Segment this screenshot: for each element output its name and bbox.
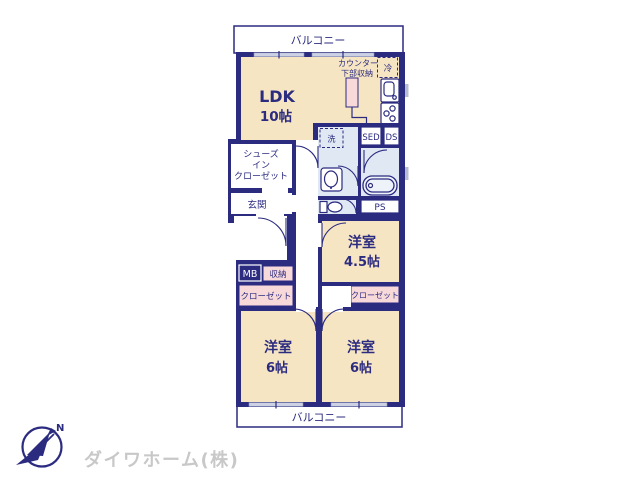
front-door-opening xyxy=(256,212,284,217)
balcony-top-label: バルコニー xyxy=(291,34,346,47)
storage-label: 収納 xyxy=(269,269,286,280)
sed-label: SED xyxy=(362,133,380,143)
toilet-bowl-icon xyxy=(328,202,342,212)
wall-vent-lower xyxy=(405,167,409,180)
ldk-size-label: 10帖 xyxy=(260,108,293,125)
room-bedroom-45 xyxy=(322,221,399,282)
washer-label: 洗 xyxy=(328,134,336,144)
balcony-bottom-label: バルコニー xyxy=(292,411,347,424)
compass-north-label: N xyxy=(56,423,64,434)
floor-plan-svg: バルコニー バルコニー LDK 10帖 カウンター 下部収納 冷 洗 SED D… xyxy=(0,0,640,480)
company-name: ダイワホーム(株) xyxy=(84,449,239,471)
kitchen-counter xyxy=(346,78,358,107)
stove-burner-2 xyxy=(384,111,389,116)
ds-label: DS xyxy=(386,133,398,143)
floor-plan-page: バルコニー バルコニー LDK 10帖 カウンター 下部収納 冷 洗 SED D… xyxy=(0,0,640,480)
bedroom-45-size: 4.5帖 xyxy=(344,254,380,270)
counter-label-line2: 下部収納 xyxy=(341,68,373,78)
closet-left-label: クローゼット xyxy=(240,291,291,302)
ldk-door-opening xyxy=(296,140,318,145)
wall-vent-upper xyxy=(405,84,409,97)
stove-burner-1 xyxy=(390,106,395,111)
mb-label: MB xyxy=(243,269,258,280)
stove-burner-3 xyxy=(390,116,395,121)
ps-label: PS xyxy=(374,203,385,213)
fridge-label: 冷 xyxy=(384,63,393,74)
washbasin-bowl xyxy=(325,171,338,187)
washbasin-drain xyxy=(330,187,332,189)
toilet-tank xyxy=(320,202,327,213)
entrance-label: 玄関 xyxy=(247,199,266,211)
corridor xyxy=(296,144,318,307)
entrance-porch xyxy=(234,216,287,260)
shoes-closet-line3: クローゼット xyxy=(234,170,288,182)
bathtub-faucet xyxy=(369,184,373,188)
counter-label-line1: カウンター xyxy=(338,59,378,68)
corridor-alcove xyxy=(322,286,351,307)
kitchen-sink-basin xyxy=(384,82,394,96)
bedroom-6-right-size: 6帖 xyxy=(350,360,372,376)
bedroom-45-door-opening xyxy=(317,223,322,247)
bedroom-6-right-label: 洋室 xyxy=(347,339,375,356)
ldk-label: LDK xyxy=(259,87,295,106)
compass-bird-wing xyxy=(27,432,50,456)
bedroom-6-left-label: 洋室 xyxy=(264,339,292,356)
closet-right-label: クローゼット xyxy=(351,290,399,300)
compass-logo: N xyxy=(16,423,64,467)
kitchen-faucet-icon xyxy=(393,96,397,100)
room-bedroom-6-left xyxy=(241,311,316,402)
shoes-closet-line1: シューズ xyxy=(243,148,279,160)
room-bedroom-6-right xyxy=(322,311,399,402)
bedroom-45-label: 洋室 xyxy=(348,234,376,251)
bedroom-6-left-size: 6帖 xyxy=(266,360,288,376)
shoes-closet-line2: イン xyxy=(252,161,270,171)
